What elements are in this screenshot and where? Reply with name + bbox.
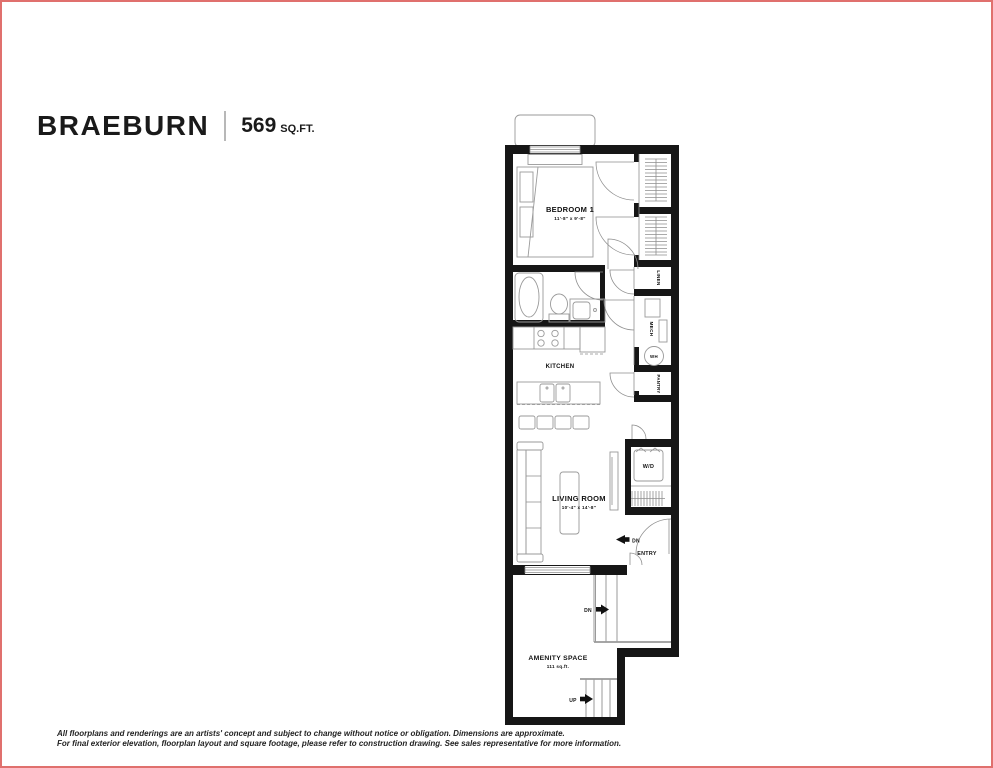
bathtub (515, 273, 543, 322)
kitchen-zone: KITCHEN (513, 327, 605, 429)
area-value: 569 (241, 115, 276, 136)
bedroom-window (530, 146, 580, 153)
stairs-dn-label: DN (584, 608, 592, 614)
stove (538, 330, 558, 346)
bathroom-zone (515, 272, 605, 322)
stairs-up-marker: UP (569, 694, 593, 704)
title-block: BRAEBURN 569 SQ.FT. (37, 110, 315, 142)
disclaimer-line2: For final exterior elevation, floorplan … (57, 739, 937, 749)
bathroom-door-arc (575, 272, 603, 300)
title-divider (224, 111, 226, 141)
floorplan-page: BRAEBURN 569 SQ.FT. (0, 0, 993, 768)
entry-dn-marker: DN (616, 535, 640, 545)
coffee-table (560, 472, 579, 534)
disclaimer-line1: All floorplans and renderings are an art… (57, 729, 937, 739)
linen-door-arc (610, 270, 634, 294)
bedroom-door-arc (608, 239, 638, 269)
laundry-zone: W/D (631, 448, 671, 506)
plan-area: 569 SQ.FT. (241, 110, 314, 136)
entry-dn-label: DN (632, 539, 640, 545)
hall-door-arc (632, 425, 646, 439)
wh-label: WH (650, 354, 658, 359)
stairs-up-label: UP (569, 698, 577, 704)
closet-door-arc-upper (596, 162, 634, 200)
balcony (515, 115, 595, 147)
entry-closet-hangers (631, 486, 671, 506)
bedroom-label: BEDROOM 1 (546, 205, 594, 214)
fridge (580, 327, 605, 354)
wd-label: W/D (643, 464, 654, 470)
disclaimer: All floorplans and renderings are an art… (57, 729, 937, 748)
pantry-door-arc (610, 373, 634, 397)
kitchen-label: KITCHEN (546, 364, 575, 370)
vanity-sink (570, 299, 605, 322)
amenity-label: AMENITY SPACE (528, 655, 587, 662)
linen-label: LINEN (656, 270, 661, 286)
utility-column: LINEN MECH WH PANTRY (604, 267, 667, 397)
dresser (528, 155, 582, 165)
kitchen-counter (513, 327, 580, 349)
toilet (549, 294, 569, 322)
water-heater: WH (645, 347, 664, 366)
amenity-area: 111 sq.ft. (547, 664, 569, 669)
pantry-label: PANTRY (656, 375, 661, 394)
area-unit: SQ.FT. (280, 123, 314, 135)
bedroom-dims: 11'-8" x 9'-8" (554, 216, 585, 221)
mech-door-arc (604, 300, 634, 330)
sofa (517, 442, 543, 562)
kitchen-island (517, 382, 600, 405)
entry-door-arc (636, 519, 671, 554)
living-room-window (525, 566, 590, 574)
living-room-label: LIVING ROOM (552, 494, 606, 503)
entry-label: ENTRY (637, 551, 657, 557)
stairs-dn-marker: DN (584, 605, 609, 615)
living-room-dims: 10'-4" x 14'-8" (562, 505, 597, 510)
amenity-zone: DN AMENITY SPACE 111 sq.ft. UP (528, 575, 671, 717)
mech-label: MECH (649, 322, 654, 337)
plan-name: BRAEBURN (37, 110, 209, 142)
floorplan-svg: BEDROOM 1 11'-8" x 9'-8" (482, 107, 702, 732)
island-stools (519, 416, 589, 429)
washer-dryer: W/D (634, 448, 663, 481)
closet-door-arc-lower (596, 217, 634, 255)
tv-console (610, 452, 618, 510)
entry-zone: DN ENTRY (616, 519, 671, 565)
